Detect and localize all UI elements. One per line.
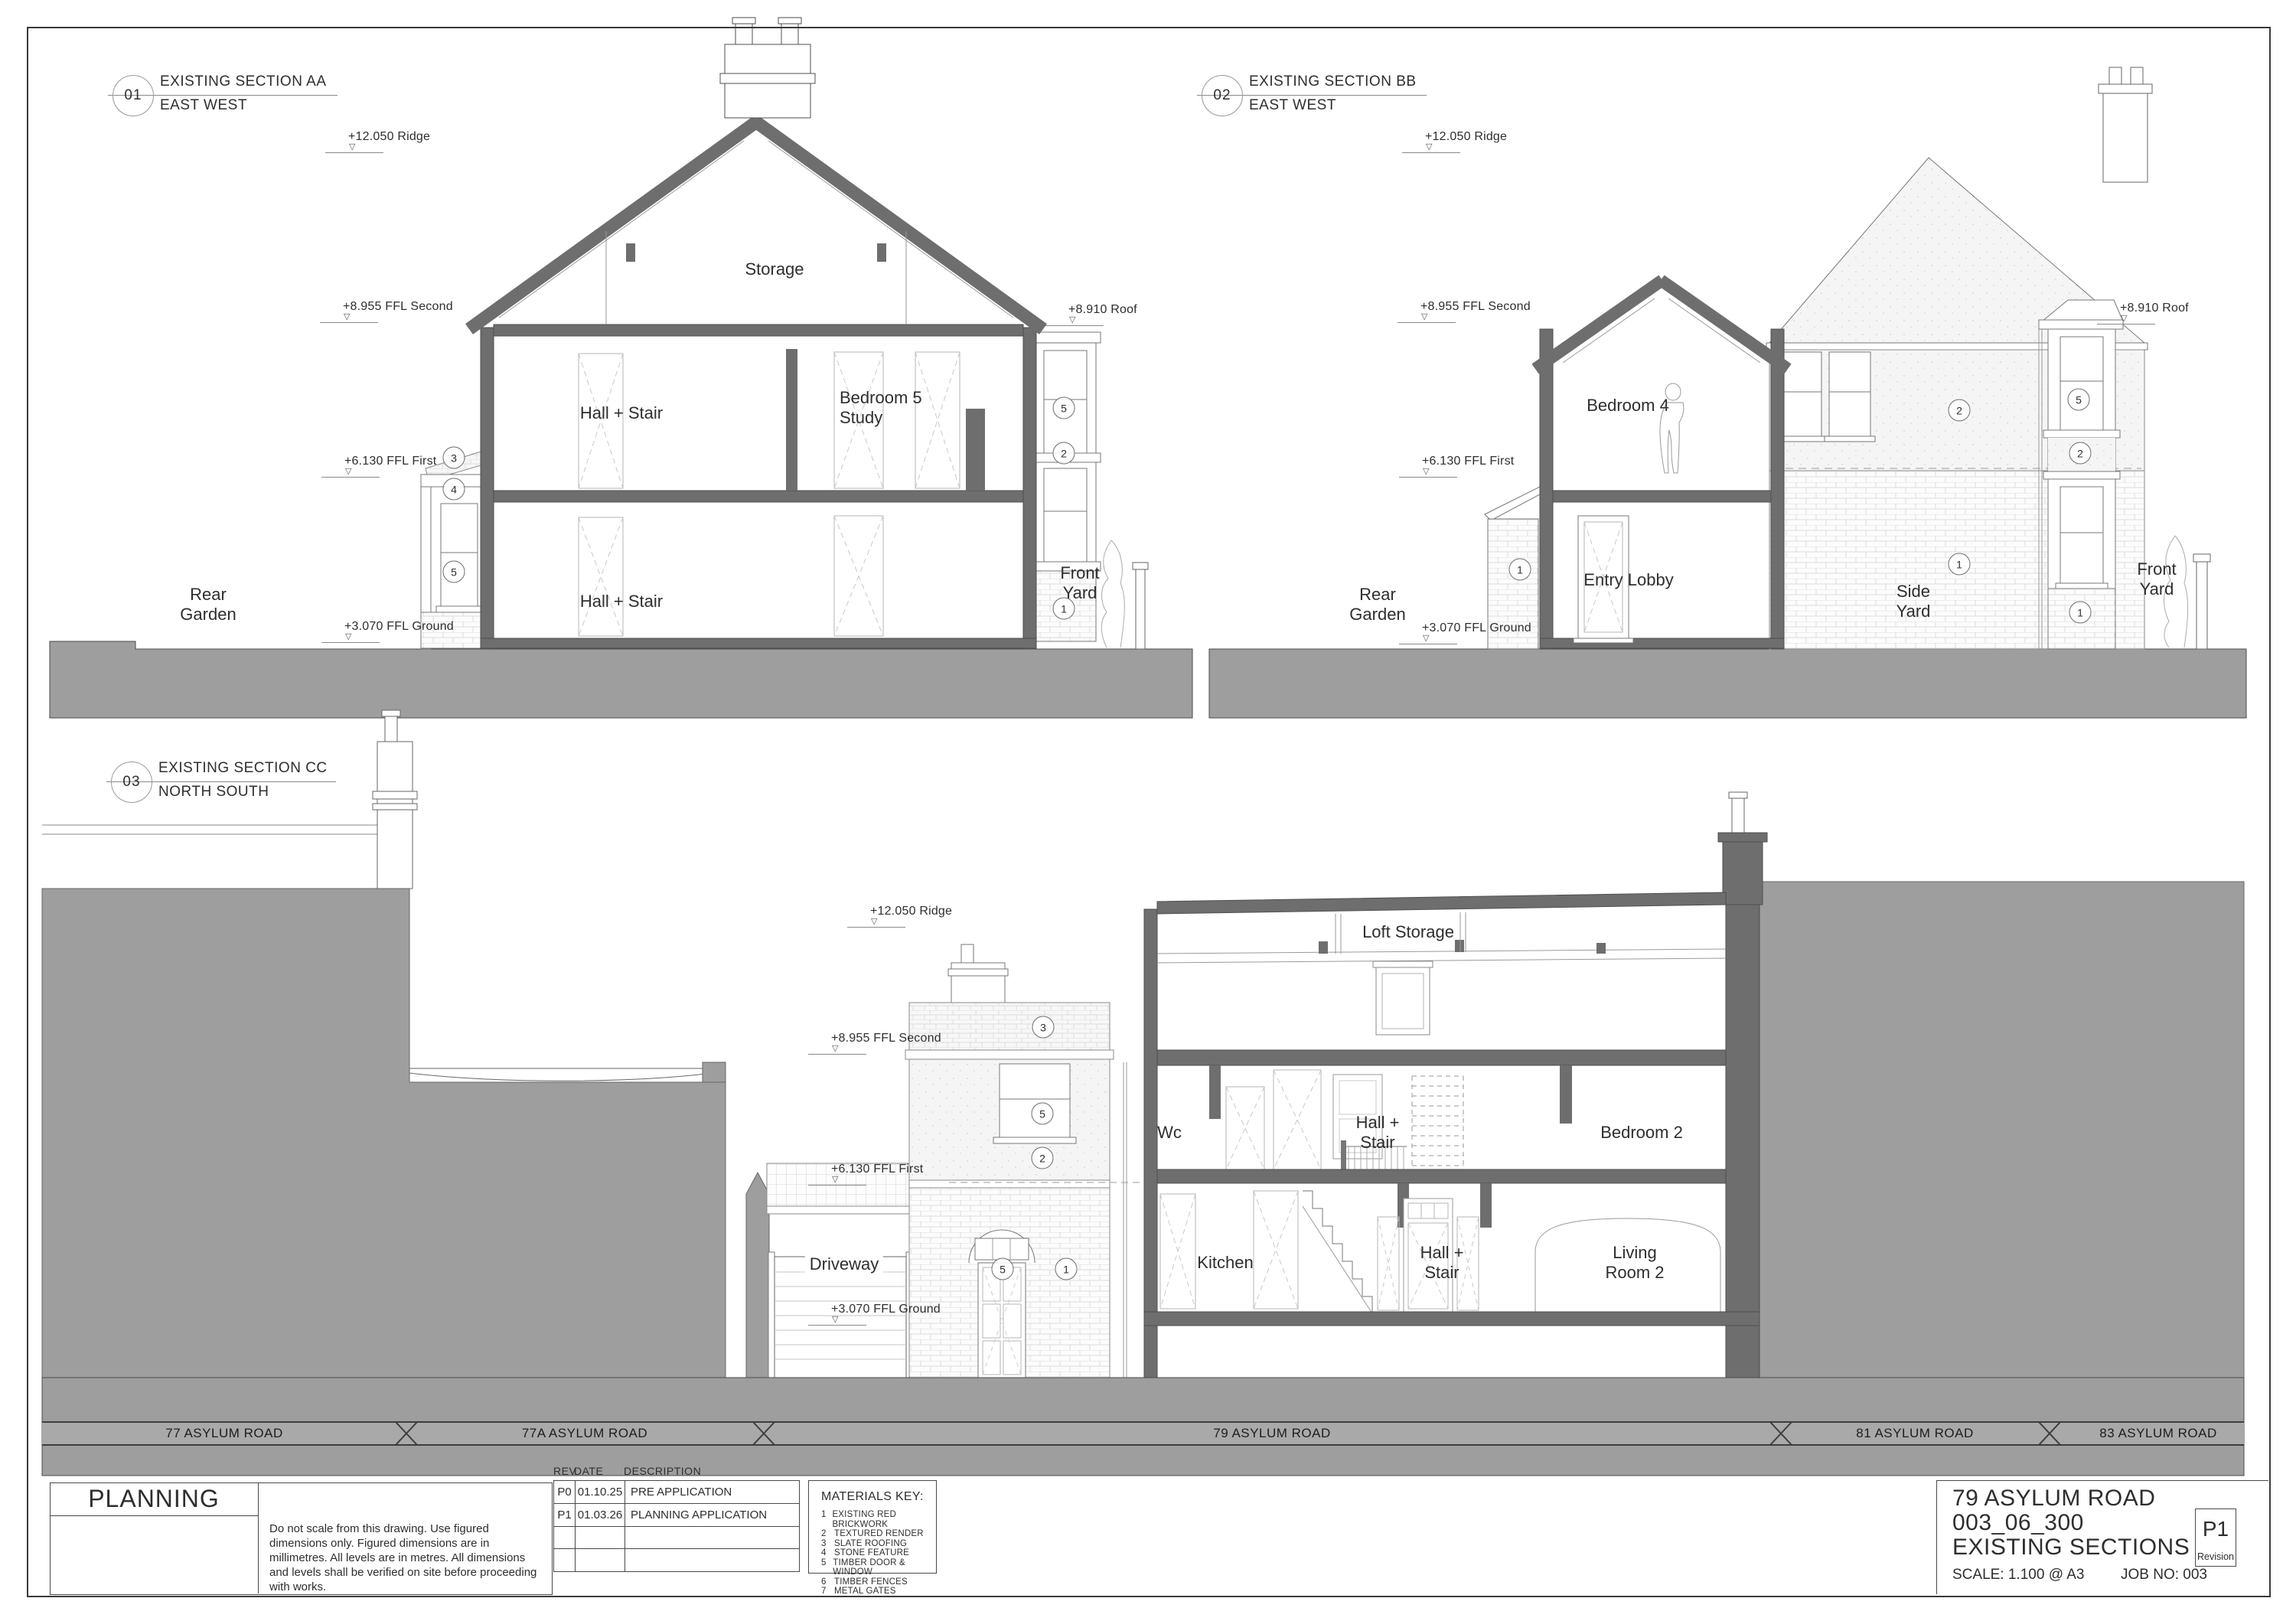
drawing-sheet: 01 EXISTING SECTION AA EAST WEST 02 EXIS… <box>0 0 2296 1621</box>
sheet-border <box>27 27 2271 1597</box>
